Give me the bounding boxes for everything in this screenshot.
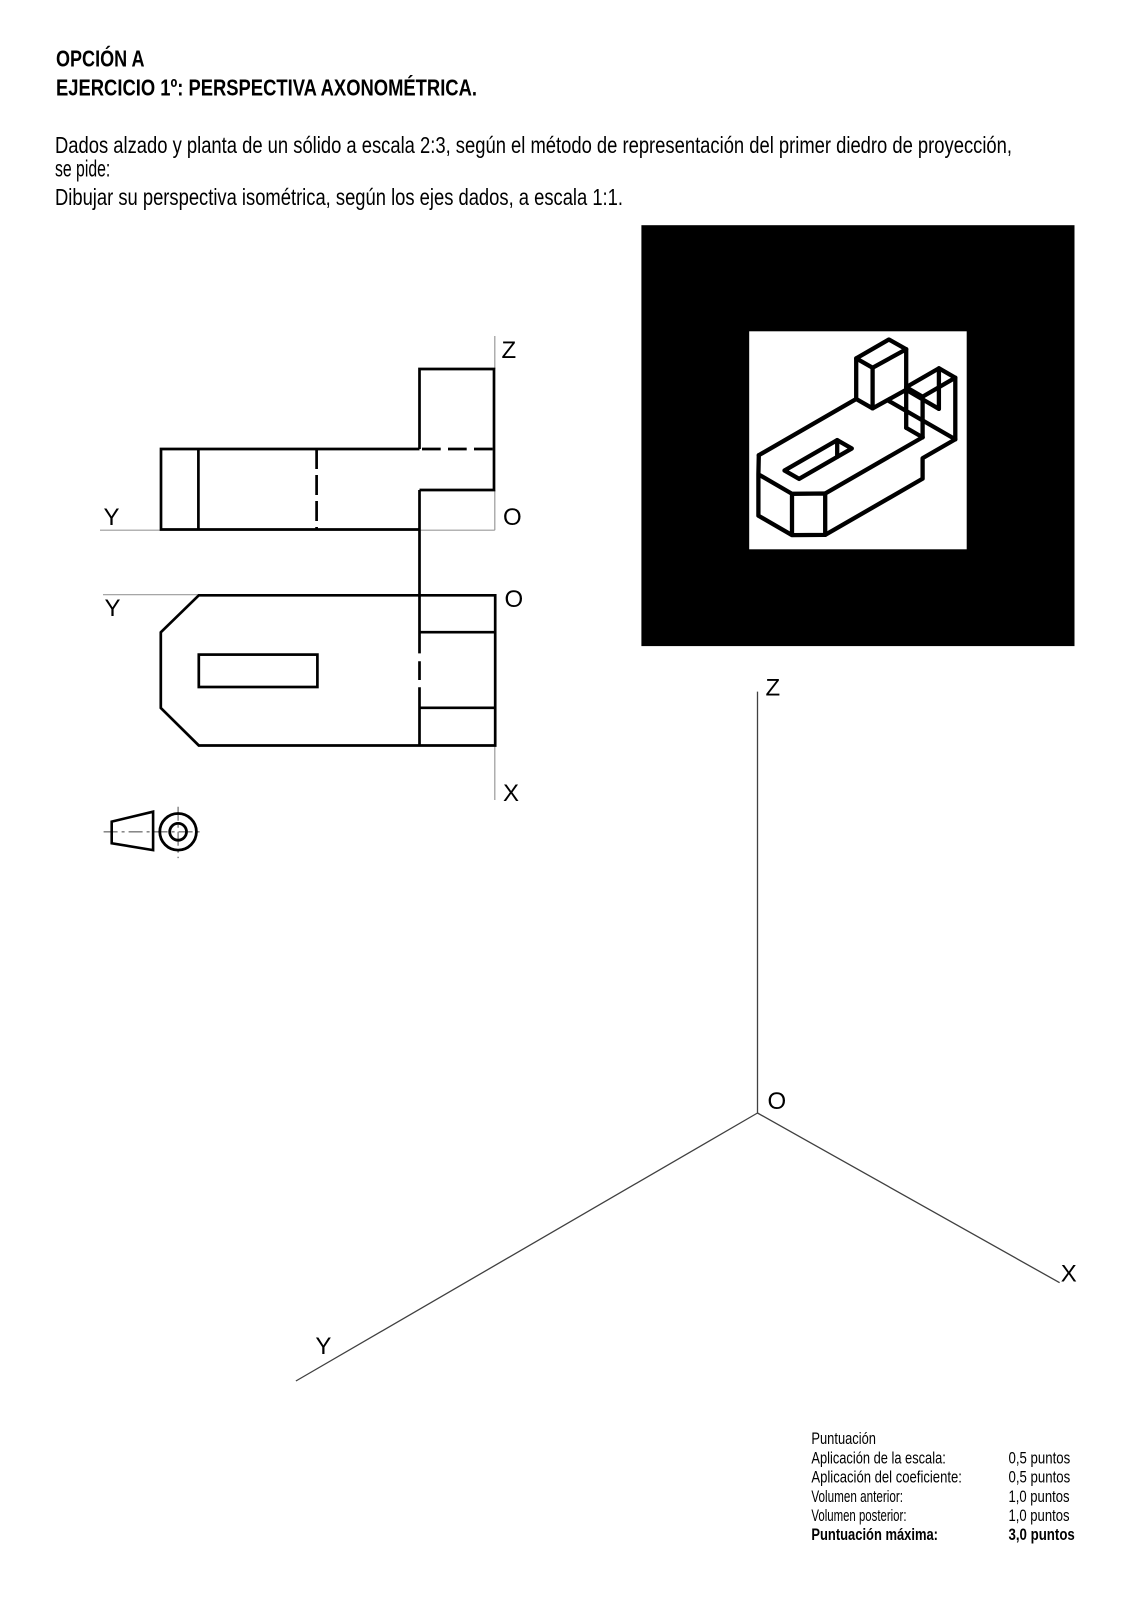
svg-text:EJERCICIO 1º: PERSPECTIVA AXON: EJERCICIO 1º: PERSPECTIVA AXONOMÉTRICA. (56, 74, 477, 101)
svg-text:Aplicación de la escala:: Aplicación de la escala: (811, 1449, 945, 1467)
svg-text:Z: Z (766, 674, 781, 701)
svg-text:Dados alzado y planta de un só: Dados alzado y planta de un sólido a esc… (55, 132, 1012, 158)
svg-text:X: X (1061, 1260, 1077, 1287)
svg-text:X: X (503, 780, 519, 807)
svg-text:1,0 puntos: 1,0 puntos (1009, 1507, 1070, 1525)
svg-text:Z: Z (502, 337, 517, 364)
svg-text:Aplicación del coeficiente:: Aplicación del coeficiente: (811, 1469, 962, 1487)
svg-text:O: O (503, 504, 522, 531)
svg-text:Volumen anterior:: Volumen anterior: (811, 1488, 903, 1506)
svg-text:3,0 puntos: 3,0 puntos (1009, 1526, 1075, 1544)
svg-text:Y: Y (315, 1333, 331, 1360)
svg-text:0,5 puntos: 0,5 puntos (1009, 1469, 1071, 1487)
svg-text:O: O (505, 586, 524, 613)
svg-text:0,5 puntos: 0,5 puntos (1009, 1449, 1071, 1467)
svg-text:Y: Y (105, 595, 121, 622)
svg-text:Puntuación máxima:: Puntuación máxima: (811, 1526, 938, 1544)
svg-text:1,0 puntos: 1,0 puntos (1009, 1488, 1070, 1506)
svg-text:Volumen posterior:: Volumen posterior: (811, 1507, 906, 1525)
svg-text:Puntuación: Puntuación (811, 1430, 876, 1448)
svg-text:OPCIÓN A: OPCIÓN A (56, 44, 145, 71)
svg-text:Y: Y (104, 504, 120, 531)
svg-text:O: O (768, 1088, 787, 1115)
svg-text:Dibujar su perspectiva isométr: Dibujar su perspectiva isométrica, según… (55, 184, 623, 210)
svg-text:se pide:: se pide: (55, 156, 110, 182)
